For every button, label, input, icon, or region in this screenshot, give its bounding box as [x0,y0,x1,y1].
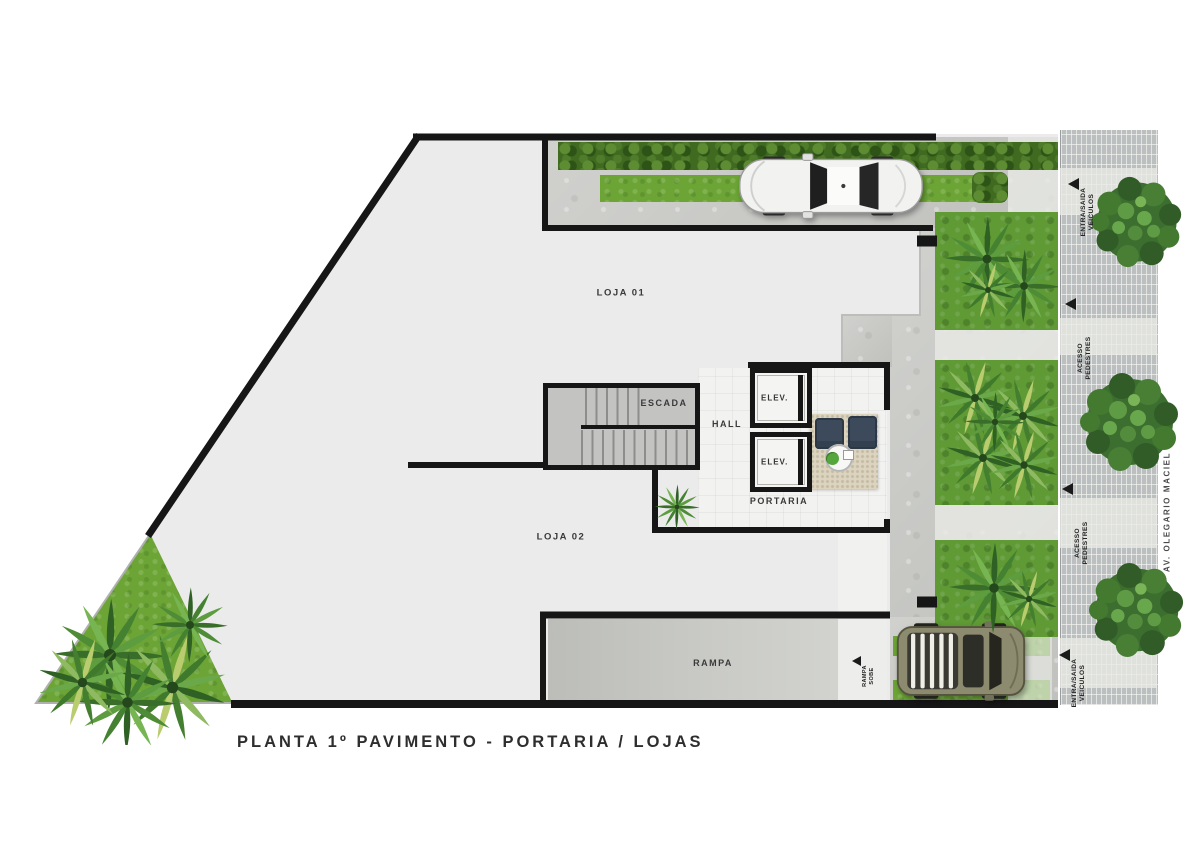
elevator-2: ELEV. [750,432,812,492]
plan-title: PLANTA 1º PAVIMENTO - PORTARIA / LOJAS [237,733,704,752]
lobby-plant [652,482,702,532]
loja01-label: LOJA 01 [597,288,646,299]
portaria-label: PORTARIA [750,496,808,506]
stair-divider-wall [581,425,695,429]
street-name-label: AV. OLEGARIO MACIEL [1163,452,1172,572]
loja01-floor-extension [890,231,920,315]
path-crossing-2 [935,505,1058,540]
armchair-2 [848,416,877,449]
access-arrow-1-icon [1068,178,1079,190]
rampa-label: RAMPA [693,658,733,668]
stair-treads-upper [585,388,643,426]
corner-palm-cluster [40,575,250,745]
elevator-2-counterweight [798,439,803,485]
elevator-1: ELEV. [750,368,812,428]
entry-path-extension [842,315,892,367]
table-tray [843,450,854,460]
hall-label: HALL [712,419,742,429]
path-crossing-1 [935,330,1058,360]
bed3-palms [938,538,1056,638]
sidewalk-crossing-2 [1060,318,1157,355]
stair-block [543,383,700,470]
street-tree-3 [1089,562,1185,658]
bed2-palms [935,358,1058,506]
ramp-direction-arrow-icon [852,656,861,666]
top-bush [972,172,1008,203]
elevator-1-counterweight [798,375,803,421]
elevator-2-label: ELEV. [761,458,788,467]
escada-label: ESCADA [640,398,687,408]
access-arrow-3-icon [1062,483,1073,495]
street-tree-1 [1091,176,1183,268]
white-car [733,148,929,224]
loja02-label: LOJA 02 [537,532,586,543]
ramp-landing [838,619,887,700]
floor-plan-canvas: ELEV. ELEV. [0,0,1200,848]
access-arrow-2-icon [1065,298,1076,310]
stair-treads-lower [581,430,695,465]
bed1-palms [940,212,1058,330]
elevator-1-label: ELEV. [761,394,788,403]
table-plant [826,452,839,465]
access-arrow-4-icon [1059,649,1070,661]
rear-corridor [838,533,887,614]
